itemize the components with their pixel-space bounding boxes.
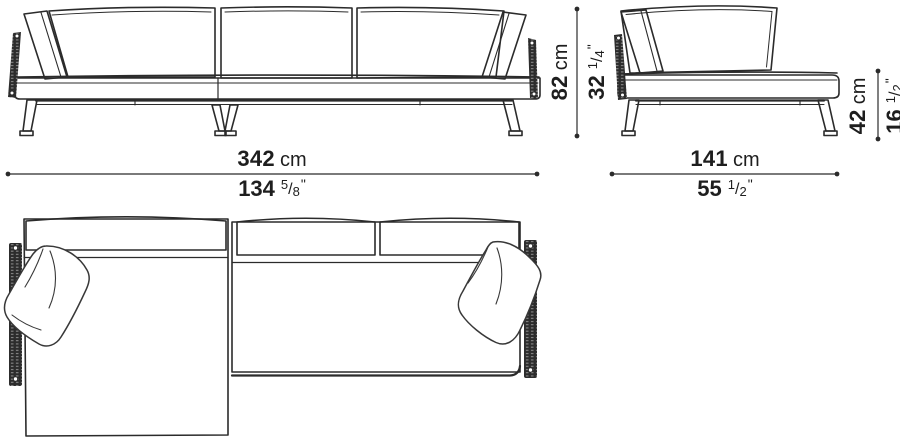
element-width-value-cm: 141	[690, 146, 728, 171]
overall-height-fraction: 1/4	[591, 50, 608, 69]
element-elevation	[614, 6, 839, 136]
plan-view	[5, 217, 541, 436]
sofa-width-unit-cm: cm	[280, 149, 307, 171]
overall-height-label-inch: 321/4"	[579, 7, 605, 137]
front-elevation	[8, 7, 540, 136]
element-legs	[622, 100, 837, 136]
seat-height-value-cm: 42	[845, 109, 870, 134]
element-width-label-cm: 141cm	[625, 146, 825, 172]
element-seat	[618, 72, 839, 98]
dimension-drawing-sheet: 342cm 1345/8" 141cm 551/2" 82cm 321/4" 4…	[0, 0, 900, 439]
sofa-width-value-inch: 134	[238, 176, 275, 201]
element-arm-cushion	[621, 10, 663, 73]
sofa-width-value-cm: 342	[237, 146, 275, 171]
front-back-cushions	[24, 7, 526, 79]
element-width-label-inch: 551/2"	[625, 176, 825, 202]
front-legs	[20, 100, 522, 136]
element-rail	[636, 100, 824, 105]
sofa-width-label-cm: 342cm	[172, 146, 372, 172]
element-width-fraction: 1/2	[728, 183, 747, 200]
overall-height-label-cm: 82cm	[547, 7, 573, 137]
element-width-value-inch: 55	[697, 176, 721, 201]
overall-height-value-cm: 82	[547, 75, 572, 100]
sofa-width-fraction: 5/8	[281, 183, 300, 200]
overall-height-value-inch: 32	[584, 75, 609, 99]
sofa-width-label-inch: 1345/8"	[172, 176, 372, 202]
front-armrest-straps	[8, 32, 538, 99]
front-rail	[36, 100, 512, 105]
seat-height-label-cm: 42cm	[845, 41, 871, 171]
element-back-frame	[621, 6, 777, 73]
seat-height-unit-cm: cm	[848, 78, 870, 105]
line-art	[0, 0, 900, 439]
overall-height-unit-cm: cm	[550, 44, 572, 71]
plan-left-pillow	[5, 246, 125, 346]
front-seat	[15, 75, 540, 99]
seat-height-fraction: 1/2	[889, 84, 900, 103]
element-width-unit-cm: cm	[733, 149, 760, 171]
seat-height-value-inch: 16	[882, 109, 900, 133]
seat-height-label-inch: 161/2"	[877, 41, 900, 171]
